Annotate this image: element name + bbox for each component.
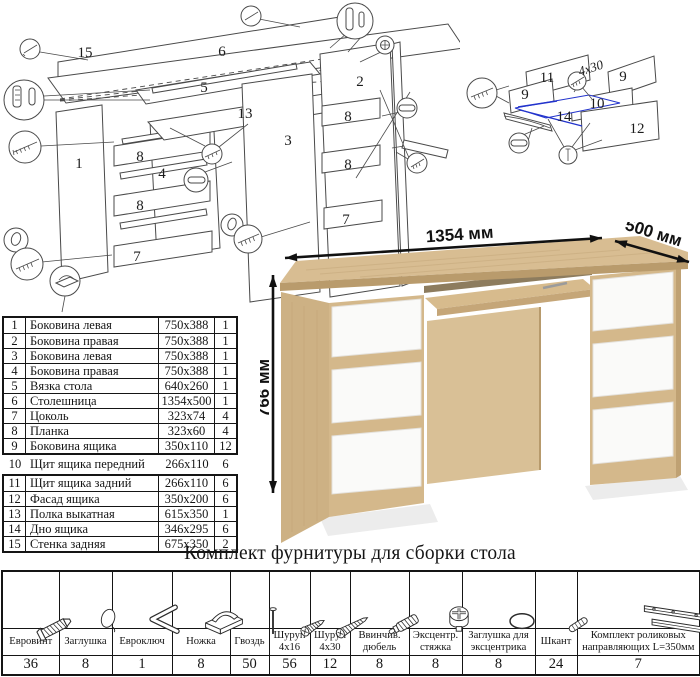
parts-row-size: 750x388 [159, 364, 215, 378]
hardware-item-qty: 7 [577, 655, 700, 675]
dowel-pair-callout [4, 80, 44, 120]
parts-row-size: 750x388 [159, 318, 215, 333]
parts-row-qty: 6 [215, 457, 236, 472]
parts-row-name: Щит ящика задний [26, 476, 159, 491]
parts-row-size: 323x74 [159, 409, 215, 423]
parts-row-qty: 1 [215, 507, 236, 521]
hardware-item-qty: 50 [230, 655, 269, 675]
parts-row-size: 615x350 [159, 507, 215, 521]
parts-row: 1Боковина левая750x3881 [4, 318, 236, 333]
cam-lock-icon [436, 600, 463, 628]
parts-row-qty: 6 [215, 492, 236, 506]
parts-row-number: 3 [4, 349, 26, 363]
part-label: 13 [238, 106, 253, 122]
parts-row-number: 5 [4, 379, 26, 393]
parts-row-number: 1 [4, 318, 26, 333]
parts-row-name: Полка выкатная [26, 507, 159, 521]
hardware-item-qty: 8 [462, 655, 535, 675]
parts-row-qty: 1 [215, 394, 236, 408]
parts-row: 9Боковина ящика350x11012 [4, 438, 236, 453]
screw-long-icon [330, 600, 350, 628]
parts-row: 8Планка323x604 [4, 423, 236, 438]
euro-screw-icon [31, 600, 59, 628]
parts-row-size: 346x295 [159, 522, 215, 536]
drawer-front [332, 362, 421, 423]
parts-row-size: 350x110 [159, 439, 215, 453]
parts-row-number: 4 [4, 364, 26, 378]
hardware-item-qty: 24 [535, 655, 577, 675]
parts-row: 7Цоколь323x744 [4, 408, 236, 423]
parts-row-number: 8 [4, 424, 26, 438]
parts-row-qty: 6 [215, 522, 236, 536]
parts-row-qty: 12 [215, 439, 236, 453]
parts-row-number: 11 [4, 476, 26, 491]
assembly-instruction-sheet: 15 6 5 13 1 4 8 8 7 3 2 8 8 7 [0, 0, 700, 677]
desk-tie-panel [427, 307, 540, 484]
parts-row-name: Боковина ящика [26, 439, 159, 453]
drawer-front [332, 299, 421, 357]
screw-dowel-icon [346, 8, 353, 30]
part-label: 2 [356, 74, 364, 90]
parts-row-name: Боковина правая [26, 364, 159, 378]
parts-row-qty: 4 [215, 409, 236, 423]
dowel-icon [399, 105, 415, 111]
foot-icon [201, 600, 230, 628]
hardware-item-qty: 1 [112, 655, 172, 675]
parts-row: 12Фасад ящика350x2006 [4, 491, 236, 506]
parts-row-name: Вязка стола [26, 379, 159, 393]
part-label: 5 [200, 80, 208, 96]
dowel-icon [359, 12, 364, 27]
hex-key-icon [142, 600, 172, 628]
parts-table-segment-3: 11Щит ящика задний266x110612Фасад ящика3… [2, 474, 238, 553]
hardware-item-qty: 8 [350, 655, 409, 675]
parts-row-name: Фасад ящика [26, 492, 159, 506]
parts-row-number: 14 [4, 522, 26, 536]
exploded-drawer-diagram: 11 9 9 10 14 12 4x30 [440, 0, 700, 200]
hardware-title: Комплект фурнитуры для сборки стола [0, 543, 700, 565]
parts-row-number: 13 [4, 507, 26, 521]
drawer-front [593, 272, 673, 331]
screw-dowel-icon [380, 600, 410, 628]
parts-row: 4Боковина правая750x3881 [4, 363, 236, 378]
hardware-item-qty: 36 [2, 655, 59, 675]
parts-row-size: 323x60 [159, 424, 215, 438]
dowel-icon [556, 600, 577, 628]
parts-row-size: 750x388 [159, 334, 215, 348]
part-label: 9 [521, 87, 529, 103]
parts-row: 13Полка выкатная615x3501 [4, 506, 236, 521]
drawer-front [593, 402, 673, 464]
dowel-icon [188, 177, 205, 183]
left-side-panel [281, 292, 329, 543]
part-label: 8 [344, 157, 352, 173]
part-label: 4 [158, 166, 166, 182]
parts-row-size: 266x110 [159, 476, 215, 491]
part-label: 8 [136, 149, 144, 165]
dowel-icon [511, 140, 527, 146]
part-label: 7 [133, 249, 141, 265]
hardware-icon-cell [2, 571, 59, 628]
cap-icon [86, 600, 113, 628]
desk-body [280, 236, 688, 543]
part-label: 11 [540, 70, 554, 86]
parts-row-qty: 6 [215, 476, 236, 491]
part-label: 8 [344, 109, 352, 125]
parts-row-size: 640x260 [159, 379, 215, 393]
screw-short-icon [290, 600, 311, 628]
parts-row-number: 7 [4, 409, 26, 423]
parts-row-name: Планка [26, 424, 159, 438]
dowel-pair-callout [337, 3, 373, 39]
parts-row-name: Боковина левая [26, 349, 159, 363]
parts-row-qty: 1 [215, 318, 236, 333]
parts-row: 10Щит ящика передний266x1106 [4, 457, 236, 472]
parts-row-qty: 1 [215, 379, 236, 393]
parts-row-name: Цоколь [26, 409, 159, 423]
hardware-item-qty: 12 [310, 655, 350, 675]
part-label: 1 [75, 156, 83, 172]
parts-table-segment-2: 10Щит ящика передний266x1106 [2, 455, 238, 474]
parts-row-qty: 1 [215, 349, 236, 363]
parts-row-number: 9 [4, 439, 26, 453]
part-label: 14 [557, 109, 573, 125]
hardware-item-qty: 56 [269, 655, 310, 675]
hardware-item-qty: 8 [409, 655, 462, 675]
hardware-item-qty: 8 [59, 655, 112, 675]
cam-cap-icon [499, 600, 536, 628]
parts-row-size: 350x200 [159, 492, 215, 506]
hardware-table: ЕвровинтЗаглушкаЕвроключНожкаГвоздьШуруп… [1, 570, 700, 676]
screw-dowel-icon [13, 86, 21, 107]
parts-row-qty: 1 [215, 334, 236, 348]
nail-icon [250, 600, 270, 628]
part-label: 8 [136, 198, 144, 214]
parts-row-size: 1354x500 [159, 394, 215, 408]
part-label: 15 [78, 45, 93, 61]
part-label: 10 [590, 96, 605, 112]
parts-row-qty: 1 [215, 364, 236, 378]
parts-row: 11Щит ящика задний266x1106 [4, 476, 236, 491]
parts-row: 6Столешница1354x5001 [4, 393, 236, 408]
parts-table: 1Боковина левая750x38812Боковина правая7… [2, 316, 238, 553]
parts-row-qty: 4 [215, 424, 236, 438]
drawer-front [593, 336, 673, 397]
width-dimension: 1354 мм [425, 223, 494, 247]
parts-table-segment-1: 1Боковина левая750x38812Боковина правая7… [2, 316, 238, 455]
parts-row-size: 750x388 [159, 349, 215, 363]
parts-row-number: 12 [4, 492, 26, 506]
parts-row-name: Боковина левая [26, 318, 159, 333]
parts-row: 14Дно ящика346x2956 [4, 521, 236, 536]
part-label: 12 [630, 121, 645, 137]
parts-row-number: 10 [4, 457, 26, 472]
parts-row-name: Боковина правая [26, 334, 159, 348]
drawer-slide-icon [638, 600, 700, 628]
dowel-icon [29, 88, 35, 105]
parts-row-number: 2 [4, 334, 26, 348]
part-label: 3 [284, 133, 292, 149]
parts-row: 5Вязка стола640x2601 [4, 378, 236, 393]
parts-row-name: Щит ящика передний [26, 457, 159, 472]
hardware-item-qty: 8 [172, 655, 230, 675]
parts-row-number: 6 [4, 394, 26, 408]
drawer-front [332, 428, 421, 494]
height-dimension: 766 мм [260, 359, 273, 417]
part-label: 9 [619, 69, 627, 85]
parts-row-name: Столешница [26, 394, 159, 408]
desk-render: 1354 мм 500 мм 766 мм [260, 222, 700, 548]
parts-row-size: 266x110 [159, 457, 215, 472]
parts-row: 3Боковина левая750x3881 [4, 348, 236, 363]
parts-row: 2Боковина правая750x3881 [4, 333, 236, 348]
parts-row-name: Дно ящика [26, 522, 159, 536]
part-label: 6 [218, 44, 226, 60]
